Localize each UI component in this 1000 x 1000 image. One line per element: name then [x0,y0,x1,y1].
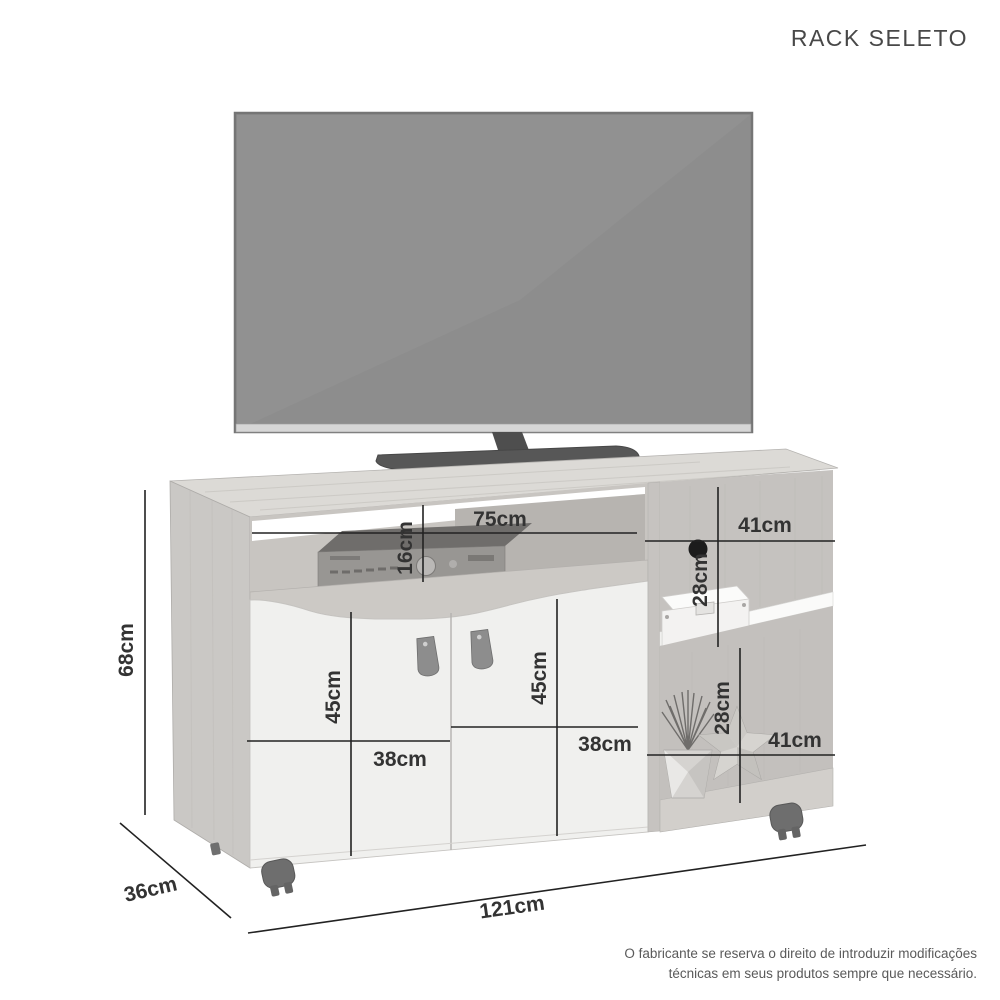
receiver-logo [330,556,360,560]
dim-label-lower-right-height: 28cm [711,681,734,735]
page-title: RACK SELETO [791,25,968,51]
dim-label-upper-right-width: 41cm [738,514,792,537]
receiver-display [468,555,494,561]
dim-label-top-shelf-height: 16cm [394,521,417,575]
rack-diagram: 75cm 16cm 41cm 28cm 28cm 41cm 45cm 38cm … [0,0,1000,1000]
dim-label-top-shelf-width: 75cm [473,508,527,531]
dim-label-upper-right-height: 28cm [689,553,712,607]
receiver-knob [417,557,436,576]
door-block [250,581,648,868]
dim-label-left-door-height: 45cm [322,670,345,724]
disclaimer: O fabricante se reserva o direito de int… [624,946,977,981]
dim-label-total-width: 121cm [478,892,546,924]
tv-bottom-strip [236,424,751,432]
receiver-small-knob [449,560,457,568]
dim-label-lower-right-width: 41cm [768,729,822,752]
dim-label-right-door-width: 38cm [578,733,632,756]
dim-label-total-depth: 36cm [122,872,180,906]
disclaimer-line2: técnicas em seus produtos sempre que nec… [669,966,977,981]
tv [235,113,752,473]
dim-label-left-door-width: 38cm [373,748,427,771]
dim-label-right-door-height: 45cm [528,651,551,705]
rack-left-panel [170,481,250,868]
center-divider [648,482,660,832]
disclaimer-line1: O fabricante se reserva o direito de int… [624,946,977,961]
dim-label-total-height: 68cm [115,623,138,677]
product-diagram-page: 75cm 16cm 41cm 28cm 28cm 41cm 45cm 38cm … [0,0,1000,1000]
front-right-caster [768,801,806,841]
